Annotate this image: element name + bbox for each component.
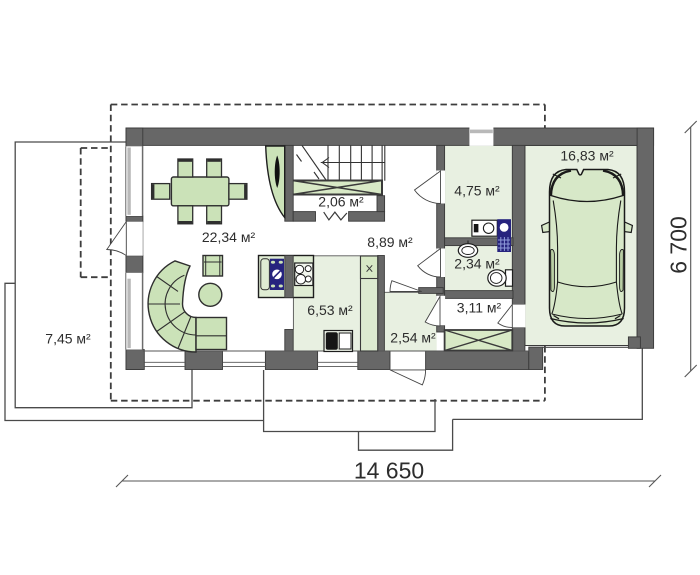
- svg-text:6 700: 6 700: [666, 216, 692, 274]
- svg-text:8,89 м²: 8,89 м²: [367, 234, 413, 250]
- svg-text:2,34 м²: 2,34 м²: [454, 256, 500, 272]
- svg-text:3,11 м²: 3,11 м²: [457, 300, 502, 316]
- svg-text:7,45 м²: 7,45 м²: [45, 331, 91, 347]
- svg-text:22,34 м²: 22,34 м²: [202, 229, 256, 245]
- svg-text:2,54 м²: 2,54 м²: [390, 330, 436, 346]
- svg-text:16,83 м²: 16,83 м²: [560, 148, 614, 164]
- svg-text:14 650: 14 650: [354, 458, 424, 484]
- svg-text:6,53 м²: 6,53 м²: [307, 302, 353, 318]
- svg-text:4,75 м²: 4,75 м²: [454, 183, 500, 199]
- svg-text:2,06 м²: 2,06 м²: [318, 194, 364, 210]
